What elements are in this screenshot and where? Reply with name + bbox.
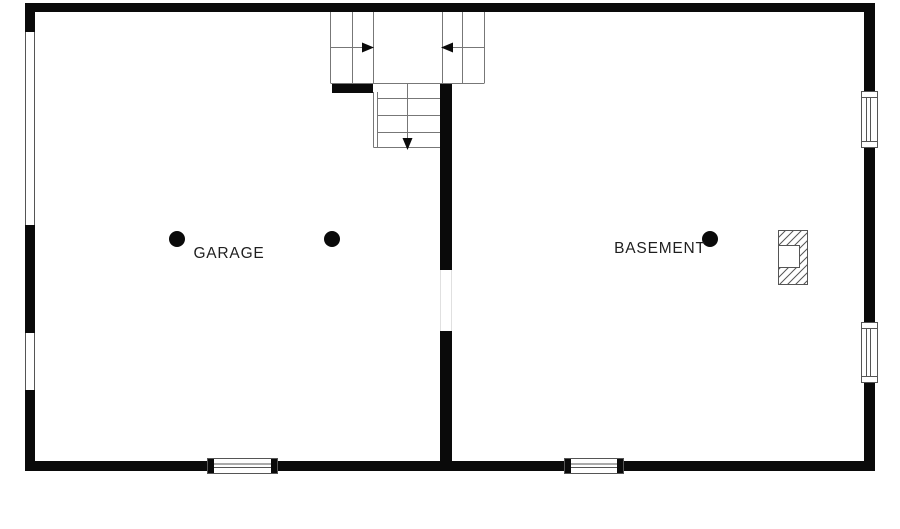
column-dot — [324, 231, 340, 247]
interior-wall-lower — [440, 331, 452, 471]
bottom-wall-segment — [277, 461, 565, 471]
left-wall-segment — [25, 390, 35, 471]
column-dot — [169, 231, 185, 247]
floor-plan-canvas: GARAGE BASEMENT — [0, 0, 900, 529]
arrow-right-icon — [362, 43, 374, 53]
floor-plan-drawing: GARAGE BASEMENT — [0, 0, 900, 529]
right-window-1 — [862, 92, 878, 148]
chimney — [779, 231, 808, 285]
stair-upper-flight — [331, 12, 485, 84]
top-wall — [25, 3, 875, 12]
door-opening — [441, 270, 452, 331]
bottom-wall-segment — [623, 461, 875, 471]
bottom-window-2 — [565, 459, 624, 474]
left-wall-windows — [26, 32, 35, 390]
interior-wall-upper — [440, 84, 452, 270]
left-window-2 — [26, 333, 35, 390]
bottom-window-1 — [208, 459, 278, 474]
left-window-1 — [26, 32, 35, 225]
walls — [25, 3, 875, 471]
bottom-wall-segment — [25, 461, 208, 471]
right-window-2 — [862, 323, 878, 383]
chimney-flue — [779, 246, 800, 268]
left-wall-segment — [25, 3, 35, 32]
garage-label: GARAGE — [193, 245, 264, 262]
right-wall-segment — [864, 3, 875, 92]
arrow-down-icon — [403, 138, 413, 150]
left-wall-segment — [25, 225, 35, 333]
basement-label: BASEMENT — [614, 240, 706, 257]
right-wall-segment — [864, 383, 875, 471]
right-wall-segment — [864, 148, 875, 323]
stair-stub-wall — [332, 83, 373, 93]
stair-lower-flight — [374, 83, 441, 148]
